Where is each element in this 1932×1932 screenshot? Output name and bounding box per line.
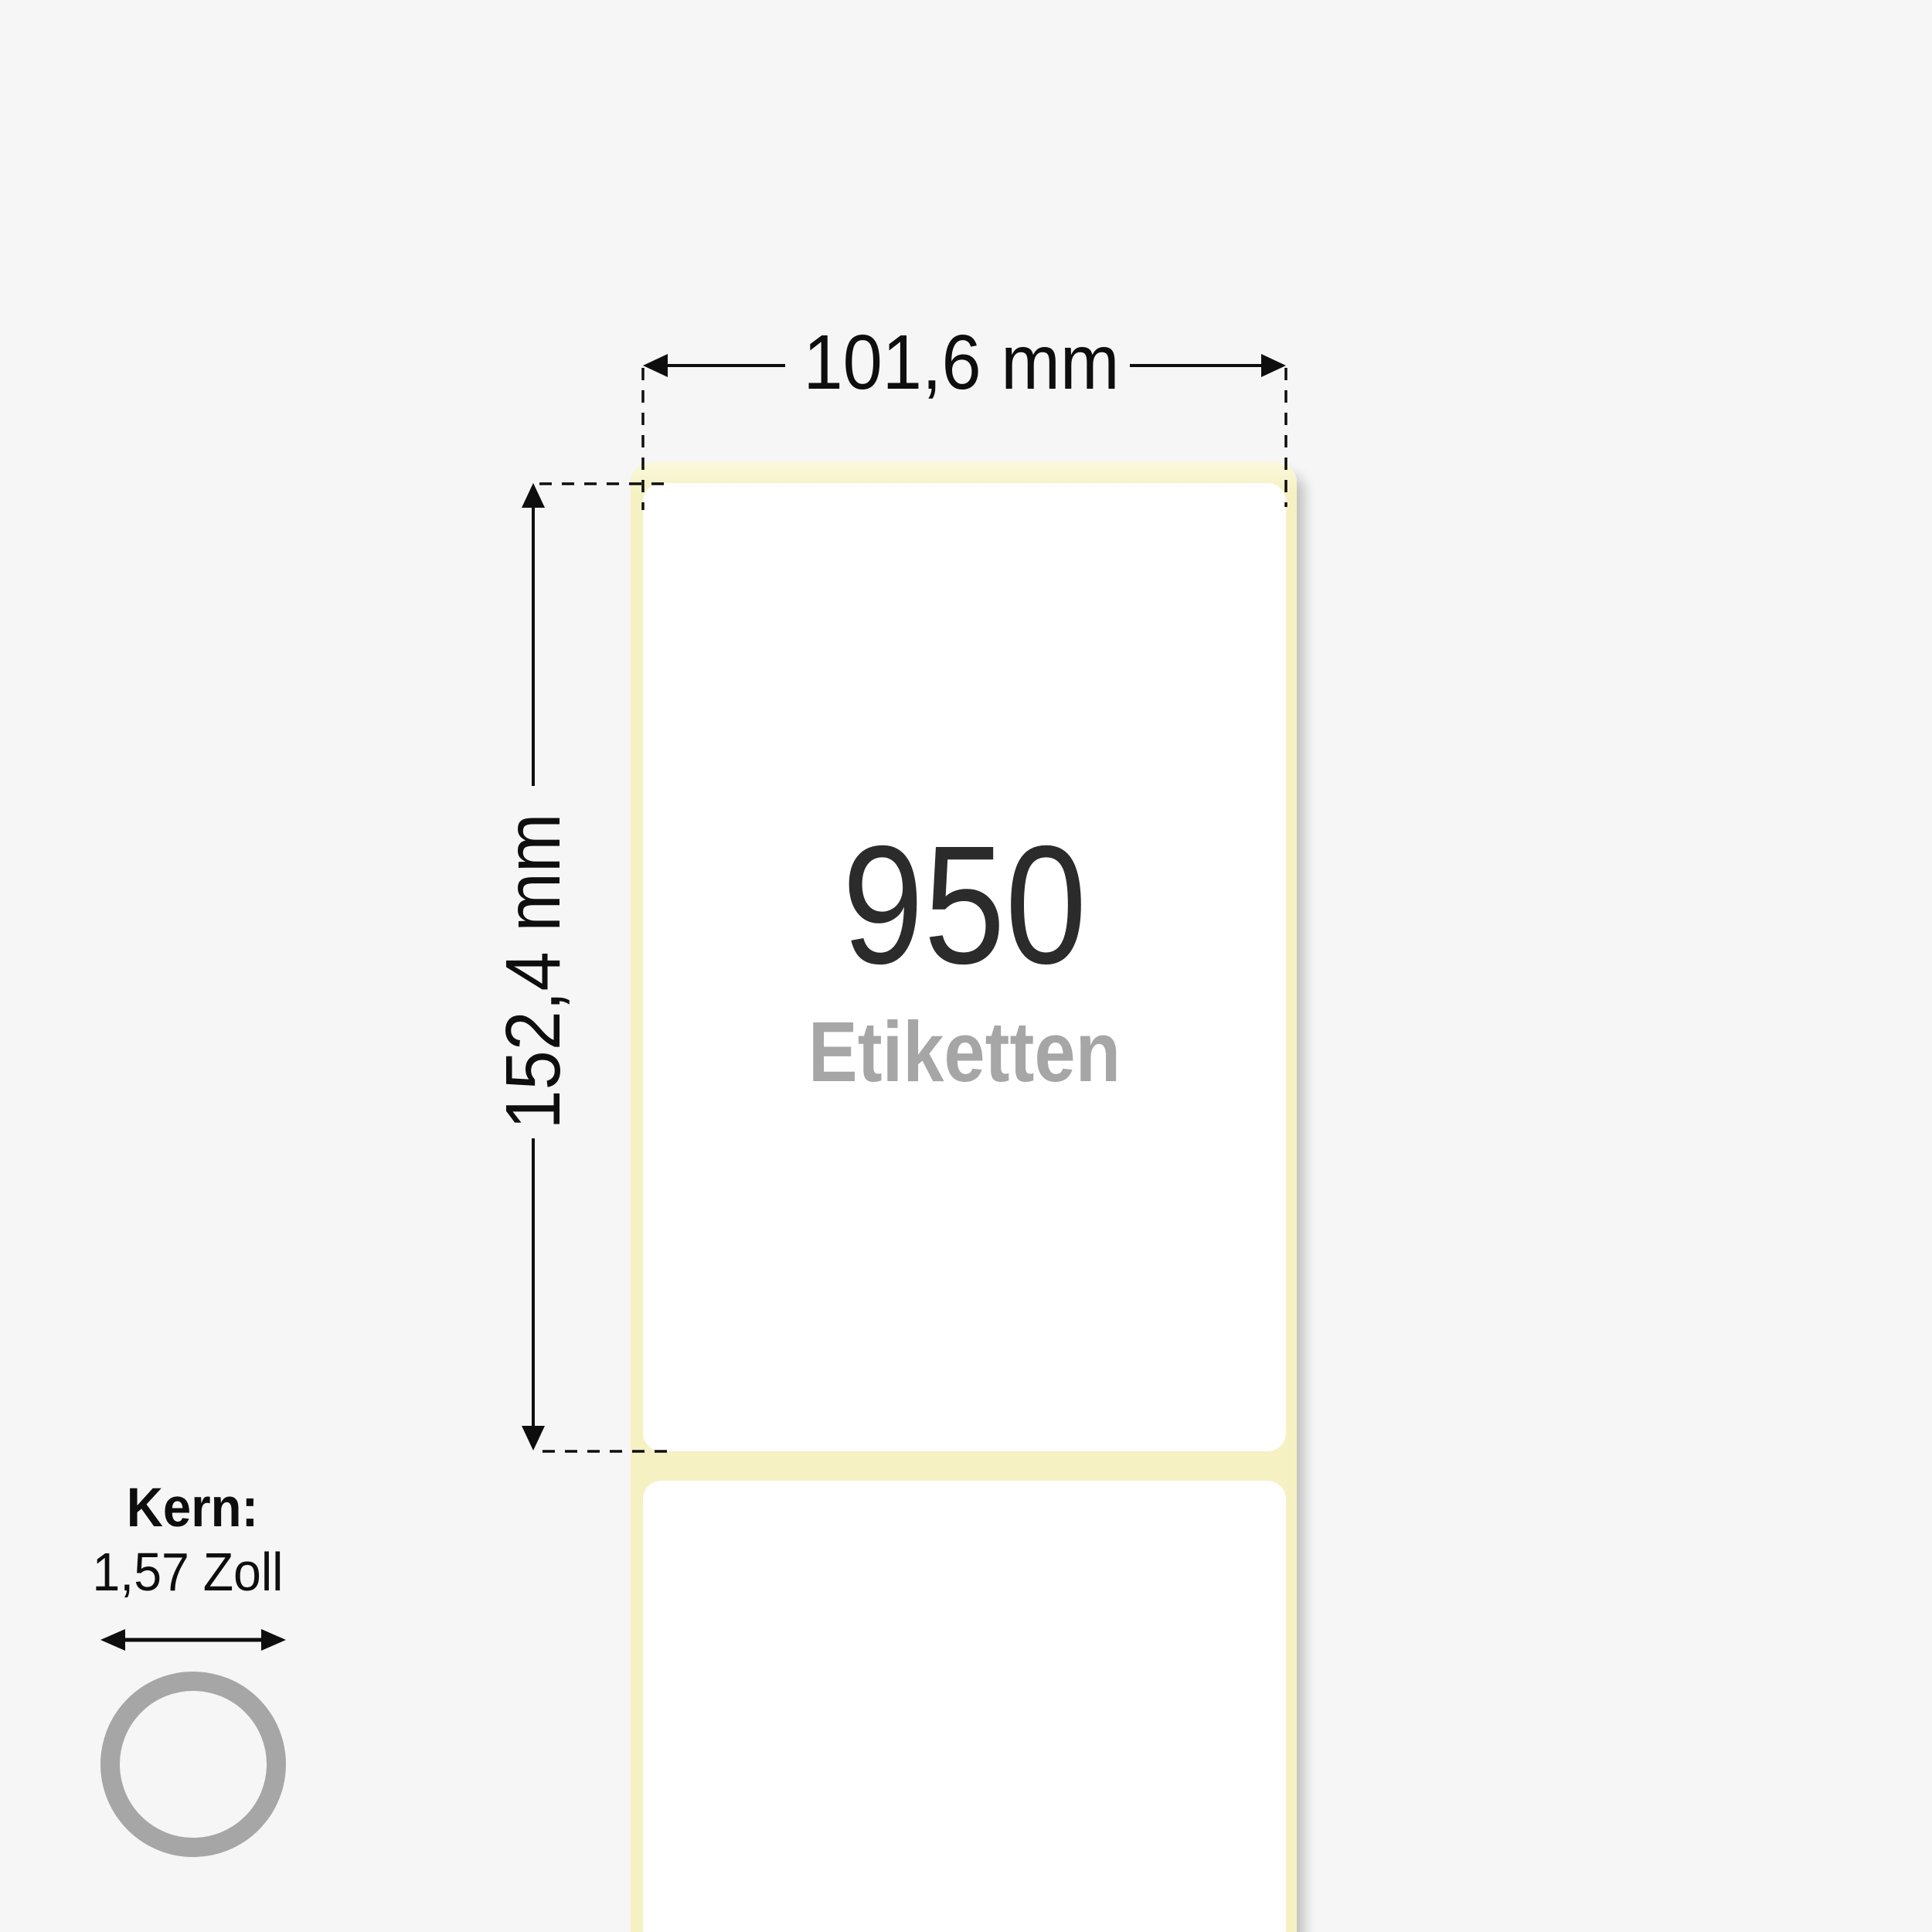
width-dimension-label: 101,6 mm — [784, 323, 1139, 402]
height-arrow-down-icon — [522, 1426, 545, 1451]
width-arrow-left-icon — [643, 354, 668, 377]
product-dimension-diagram: 950 Etiketten 101,6 mm 152,4 mm Kern: 1,… — [0, 0, 1932, 1932]
label-count-unit: Etiketten — [685, 1009, 1244, 1096]
height-arrow-up-icon — [522, 483, 545, 508]
label-next — [643, 1481, 1286, 1932]
core-arrow-right-icon — [261, 1629, 286, 1651]
height-dimension-label: 152,4 mm — [494, 794, 573, 1149]
core-size-value: 1,57 Zoll — [46, 1544, 330, 1600]
width-arrow-right-icon — [1261, 354, 1286, 377]
label-count: 950 — [685, 821, 1244, 991]
core-arrow-left-icon — [100, 1629, 125, 1651]
core-ring-icon — [100, 1672, 286, 1857]
core-title: Kern: — [50, 1480, 335, 1536]
